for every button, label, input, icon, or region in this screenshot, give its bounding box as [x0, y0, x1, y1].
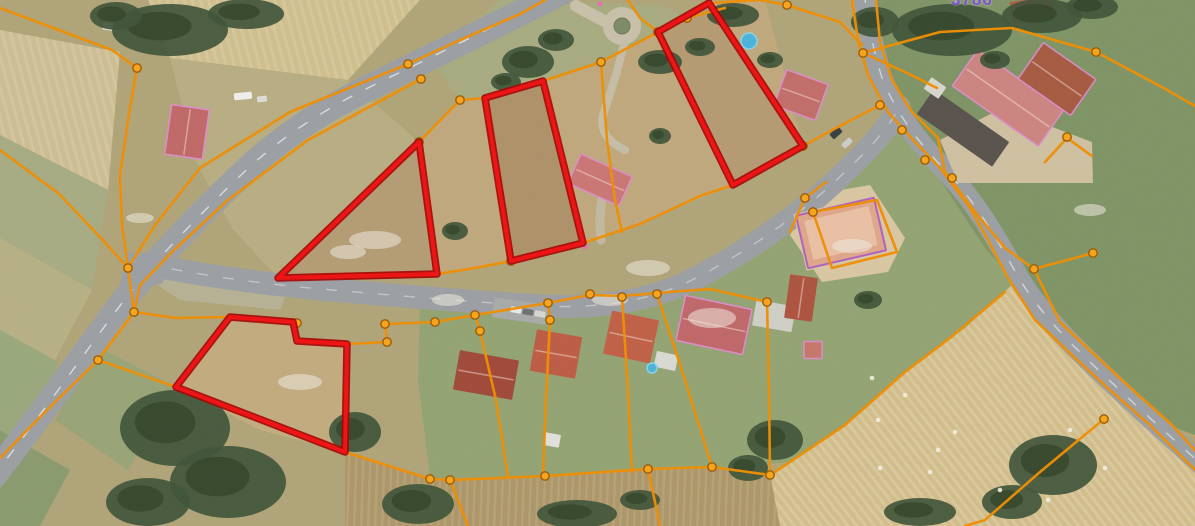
aerial-map-canvas[interactable]: 3786 — [0, 0, 1195, 526]
photo-noise — [0, 0, 1195, 526]
parcel-number-label: 3786 — [951, 0, 993, 10]
map-svg[interactable] — [0, 0, 1195, 526]
